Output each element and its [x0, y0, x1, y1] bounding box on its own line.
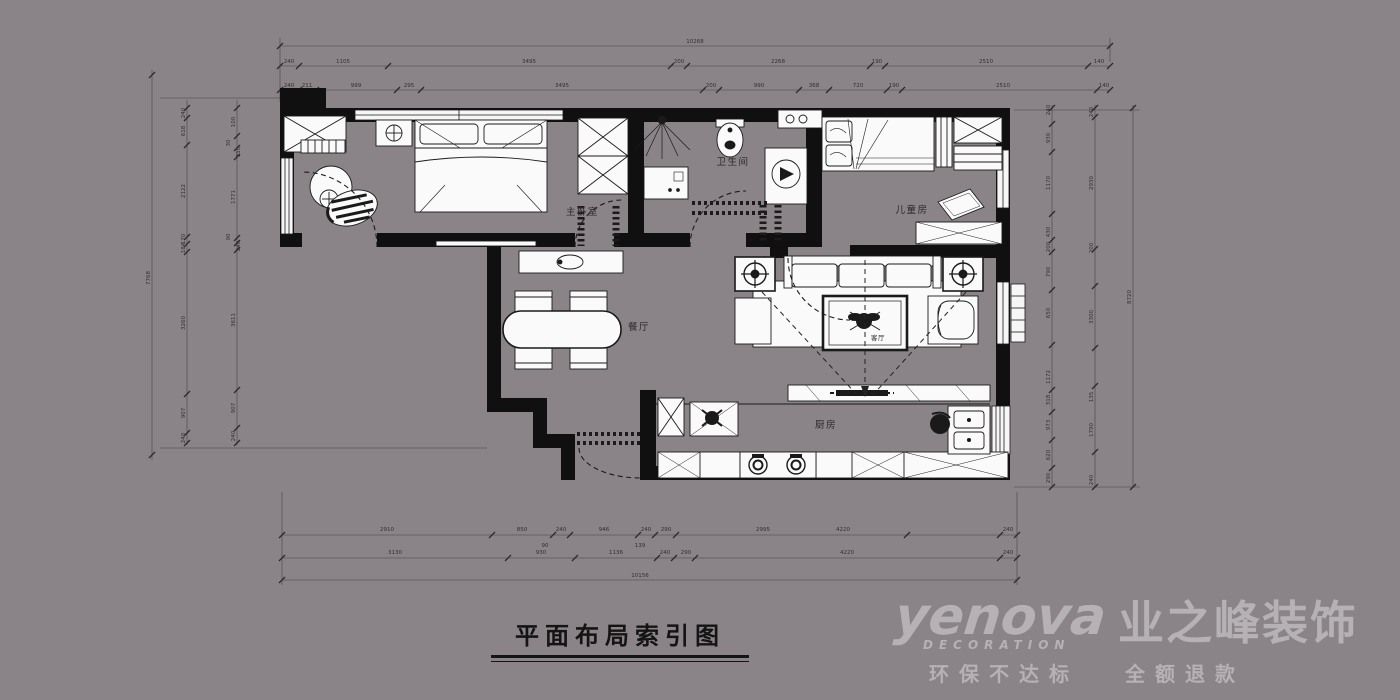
- logo-company-name: 业之峰装饰: [1118, 594, 1358, 652]
- dimension-label: 2510: [979, 59, 993, 65]
- room-label-master: 主卧室: [566, 206, 599, 218]
- shoe-cabinet-icon: [658, 398, 684, 436]
- dimension-label: 240: [284, 59, 295, 65]
- dimension-label: 240: [1003, 527, 1014, 533]
- speaker-left-icon: [735, 257, 775, 291]
- dimension-label: 318: [1046, 394, 1052, 405]
- tagline-left: 环保不达标: [929, 664, 1079, 686]
- dimension-label: 7768: [146, 271, 152, 285]
- stove-icon: [740, 452, 816, 478]
- bedroom-wardrobe-icon: [578, 118, 628, 194]
- dimension-label: 295: [404, 83, 415, 89]
- dimension-label: 240: [231, 430, 237, 441]
- dimension-label: 290: [661, 527, 672, 533]
- dimension-label: 200: [674, 59, 685, 65]
- door-arc-bathroom: [690, 191, 746, 247]
- dimension-label: 907: [231, 402, 237, 413]
- dimension-label: 790: [1046, 266, 1052, 277]
- dimension-label: 2910: [380, 527, 394, 533]
- sideboard-icon: [519, 251, 623, 273]
- dimension-label: 973: [1046, 419, 1052, 430]
- dimension-label: 240: [1089, 106, 1095, 117]
- double-bed-icon: [415, 120, 547, 212]
- kids-room: [822, 117, 1002, 244]
- master-bedroom: [284, 116, 628, 246]
- dimension-label: 1105: [336, 59, 350, 65]
- dimension-label: 618: [181, 125, 187, 136]
- dimension-label: 135: [1089, 391, 1095, 402]
- dimension-label: 240: [1003, 550, 1014, 556]
- dimension-label: 184: [181, 242, 187, 253]
- room-label-living: 客厅: [871, 333, 885, 342]
- tv-cabinet-icon: [788, 385, 990, 401]
- window-bedroom-top: [355, 110, 563, 120]
- drawing-title: 平面布局索引图: [470, 616, 770, 651]
- dimension-label: 240: [181, 107, 187, 118]
- tagline-right: 全额退款: [1125, 664, 1245, 686]
- dimension-label: 240: [1046, 104, 1052, 115]
- dimension-label: 3300: [1089, 310, 1095, 324]
- room-label-kitchen: 厨房: [815, 419, 837, 431]
- window-left-wall: [281, 158, 293, 234]
- dimension-label: 368: [809, 83, 820, 89]
- kids-rug-icon: [938, 189, 984, 220]
- dining-room: [503, 251, 623, 369]
- dimension-label: 430: [1046, 226, 1052, 237]
- dimension-label: 240: [641, 527, 652, 533]
- dimension-label: 946: [599, 527, 610, 533]
- dimension-label: 240: [556, 527, 567, 533]
- dimension-label: 90: [226, 233, 232, 240]
- dimension-label: 310: [236, 146, 242, 157]
- logo-wordmark: yenova DECORATION: [895, 592, 1110, 652]
- window-living-right: [997, 282, 1009, 344]
- room-label-kids: 儿童房: [895, 204, 928, 216]
- dimension-label: 200: [706, 83, 717, 89]
- dimension-label: 200: [1089, 242, 1095, 253]
- dimension-label: 200: [1046, 241, 1052, 252]
- dimension-label: 1172: [1046, 370, 1052, 384]
- dimension-label: 190: [872, 59, 883, 65]
- sofa-icon: [784, 256, 941, 288]
- room-label-bathroom: 卫生间: [716, 156, 749, 168]
- door-arc-entry: [579, 448, 640, 478]
- kids-divider-icon: [936, 117, 952, 167]
- dimension-label: 240: [1089, 474, 1095, 485]
- dimension-label: 2930: [1089, 176, 1095, 190]
- logo-tagline: 环保不达标全额退款: [929, 658, 1400, 687]
- speaker-right-icon: [943, 257, 983, 291]
- side-table-left-icon: [735, 298, 771, 344]
- dimension-label: 8720: [1127, 290, 1133, 304]
- dimension-label: 190: [889, 83, 900, 89]
- dimension-label: 3130: [388, 550, 402, 556]
- dimension-label: 2510: [996, 83, 1010, 89]
- entry-plant-cabinet-icon: [690, 402, 738, 436]
- dimension-label: 1771: [231, 190, 237, 204]
- dimension-label: 170: [181, 233, 187, 244]
- dimension-label: 2122: [181, 184, 187, 198]
- dimension-label: 620: [1046, 449, 1052, 460]
- dimension-label: 240: [236, 240, 242, 251]
- dimension-label: 140: [1094, 59, 1105, 65]
- dimension-label: 999: [351, 83, 362, 89]
- washing-machine-icon: [765, 148, 807, 204]
- window-sill-icon: [436, 241, 536, 246]
- toilet-icon: [716, 119, 744, 157]
- kitchen-sink-icon: [930, 406, 990, 454]
- title-underline: [491, 655, 749, 662]
- dimension-label: 850: [517, 527, 528, 533]
- radiator-icon: [301, 140, 345, 153]
- dimension-label: 720: [853, 83, 864, 89]
- dimension-label: 139: [635, 543, 646, 549]
- dimension-label: 3495: [522, 59, 536, 65]
- floor-plan-page: 1026824011053495200226819025101402402119…: [0, 0, 1400, 700]
- dimension-label: 100: [231, 116, 237, 127]
- dimension-label: 10156: [631, 573, 649, 579]
- kitchen: [656, 398, 1008, 478]
- dimension-label: 2268: [771, 59, 785, 65]
- kids-bed-icon: [822, 117, 934, 171]
- dimension-label: 1790: [1089, 423, 1095, 437]
- dimension-label: 90: [542, 543, 549, 549]
- drawing-title-block: 平面布局索引图: [470, 616, 770, 662]
- dimension-label: 650: [1046, 307, 1052, 318]
- dimension-label: 3260: [181, 316, 187, 330]
- dimension-label: 240: [660, 550, 671, 556]
- dimension-label: 990: [754, 83, 765, 89]
- dimension-label: 930: [536, 550, 547, 556]
- window-kitchen-right: [992, 406, 1010, 454]
- dimension-label: 30: [226, 139, 232, 146]
- kids-desk-icon: [954, 117, 1002, 170]
- dimension-label: 907: [181, 407, 187, 418]
- dimension-label: 4220: [840, 550, 854, 556]
- kitchen-counter-icon: [658, 452, 1008, 478]
- dimension-label: 4220: [836, 527, 850, 533]
- dimension-label: 10268: [686, 39, 704, 45]
- dimension-label: 290: [681, 550, 692, 556]
- logo-brand-text: yenova: [892, 592, 1112, 642]
- kids-shelf-icon: [916, 222, 1002, 244]
- bath-counter-icon: [778, 110, 822, 128]
- dimension-label: 290: [1046, 472, 1052, 483]
- company-logo-block: yenova DECORATION 业之峰装饰 环保不达标全额退款: [895, 592, 1400, 687]
- dimension-label: 2995: [756, 527, 770, 533]
- room-label-dining: 餐厅: [628, 321, 650, 333]
- nightstand-icon: [376, 120, 412, 146]
- dimension-label: 1136: [609, 550, 623, 556]
- radiator-living-right: [1011, 284, 1025, 342]
- armchair-icon: [928, 296, 978, 344]
- dimension-label: 1170: [1046, 176, 1052, 190]
- dining-table-icon: [503, 291, 621, 369]
- dimension-label: 3495: [555, 83, 569, 89]
- living-room: [735, 256, 990, 401]
- dimension-label: 140: [1099, 83, 1110, 89]
- dimension-label: 930: [1046, 132, 1052, 143]
- dimension-label: 240: [181, 432, 187, 443]
- dimension-label: 3611: [231, 313, 237, 327]
- vanity-sink-icon: [644, 167, 688, 199]
